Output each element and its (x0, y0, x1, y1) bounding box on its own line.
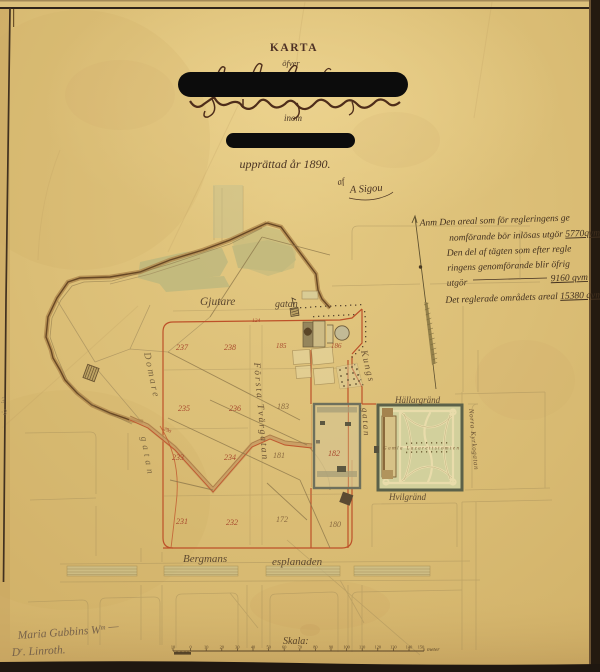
svg-text:237: 237 (176, 343, 189, 352)
svg-text:Skala:: Skala: (283, 636, 309, 647)
svg-text:10: 10 (171, 645, 175, 650)
svg-text:gatan: gatan (360, 407, 372, 437)
svg-text:40: 40 (251, 645, 255, 650)
svg-text:180: 180 (329, 520, 341, 529)
svg-text:A Sigou: A Sigou (348, 183, 382, 196)
svg-text:90: 90 (329, 645, 333, 650)
svg-text:231: 231 (176, 517, 188, 526)
svg-text:235: 235 (178, 404, 190, 413)
svg-text:30: 30 (235, 645, 239, 650)
svg-text:9160 qvm: 9160 qvm (551, 273, 589, 284)
svg-text:183: 183 (277, 402, 289, 411)
svg-text:KARTA: KARTA (270, 42, 318, 54)
svg-text:185: 185 (276, 342, 287, 350)
svg-text:234: 234 (224, 453, 236, 462)
svg-text:182: 182 (328, 449, 340, 458)
svg-text:172: 172 (276, 515, 288, 524)
svg-text:130: 130 (390, 645, 396, 650)
svg-text:236: 236 (229, 404, 241, 413)
svg-text:gatan: gatan (275, 299, 298, 310)
svg-text:120: 120 (375, 645, 381, 650)
svg-text:150: 150 (418, 645, 424, 650)
svg-text:·3: ·3 (1, 408, 7, 417)
svg-text:60: 60 (282, 645, 286, 650)
svg-text:232: 232 (226, 518, 238, 527)
svg-text:3: 3 (0, 396, 5, 405)
svg-text:inom: inom (284, 113, 303, 123)
svg-text:233: 233 (172, 453, 184, 462)
svg-text:Gamla Lazarettstomten: Gamla Lazarettstomten (383, 447, 460, 452)
svg-text:upprättad år 1890.: upprättad år 1890. (239, 157, 330, 171)
svg-text:20: 20 (220, 645, 224, 650)
svg-text:238: 238 (224, 343, 236, 352)
svg-text:Hvilgränd: Hvilgränd (388, 492, 426, 502)
svg-text:10: 10 (204, 645, 208, 650)
svg-text:124: 124 (252, 317, 261, 324)
svg-text:70: 70 (298, 645, 302, 650)
svg-text:140: 140 (406, 645, 412, 650)
svg-text:Gjutare: Gjutare (200, 296, 235, 308)
svg-text:Hällargränd: Hällargränd (394, 395, 441, 405)
svg-text:181: 181 (273, 451, 285, 460)
svg-text:öfver: öfver (282, 58, 300, 68)
svg-text:50: 50 (266, 645, 270, 650)
svg-text:186: 186 (331, 342, 342, 350)
svg-text:80: 80 (313, 645, 317, 650)
svg-text:110: 110 (359, 645, 365, 650)
svg-text:esplanaden: esplanaden (272, 556, 323, 568)
svg-text:Bergmans: Bergmans (183, 553, 227, 565)
svg-text:meter: meter (427, 647, 440, 653)
svg-text:100: 100 (343, 645, 349, 650)
svg-text:0: 0 (190, 645, 192, 650)
